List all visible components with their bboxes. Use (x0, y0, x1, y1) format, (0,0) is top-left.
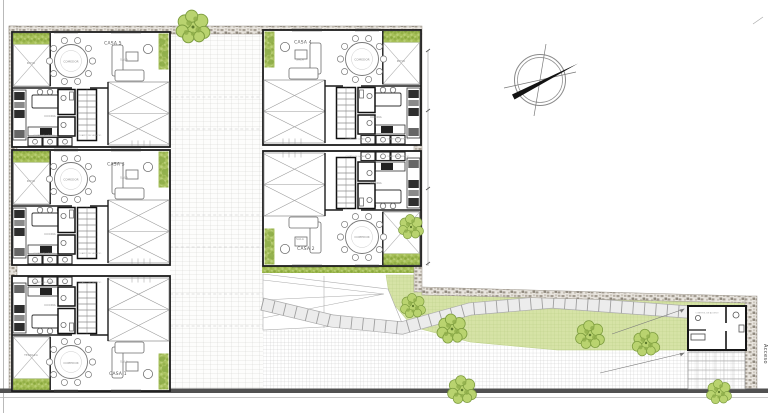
access-label: Acceso (762, 344, 768, 364)
room-label-laundry: CUARTO DE LAVADO (33, 134, 55, 137)
room-label-patio: PATIO (397, 59, 406, 63)
room-label-living: SALA (120, 58, 128, 62)
casa-2-unit (263, 151, 421, 267)
room-label-laundry: CUARTO DE LAVADO (33, 252, 55, 255)
casa-1-label: CASA 1 (109, 371, 127, 377)
room-label-living: SALA (296, 237, 304, 241)
room-label-patio: PATIO (27, 179, 36, 183)
room-label-dining: COMEDOR (63, 60, 78, 64)
room-label-dining: COMEDOR (354, 235, 369, 239)
room-label-service: CUARTO DE SERVICIO (79, 134, 102, 137)
casa-2-label: CASA 2 (297, 246, 315, 252)
room-label-laundry: CUARTO DE LAVADO (345, 155, 367, 158)
central-driveway (170, 30, 263, 391)
room-label-kitchen: COCINA (370, 181, 382, 185)
room-label-service: CUARTO DE SERVICIO (387, 138, 410, 141)
room-label-control: CONTROL DE ACCESO (696, 312, 719, 315)
casa-1-unit (12, 276, 170, 392)
room-label-service: CUARTO DE SERVICIO (79, 281, 102, 284)
room-label-terrace: TERRAZA (23, 353, 38, 357)
room-label-service: CUARTO DE SERVICIO (79, 252, 102, 255)
room-label-kitchen: COCINA (370, 115, 382, 119)
room-label-kitchen: COCINA (44, 232, 56, 236)
casa-3-label: CASA 3 (107, 162, 125, 168)
room-label-dining: COMEDOR (63, 178, 78, 182)
room-label-kitchen: COCINA (44, 114, 56, 118)
casa-5-label: CASA 5 (104, 41, 122, 47)
room-label-patio: PATIO (27, 61, 36, 65)
room-label-dining: COMEDOR (354, 58, 369, 62)
room-label-living: SALA (296, 58, 304, 62)
room-label-service: CUARTO DE SERVICIO (387, 155, 410, 158)
casa-3-unit (12, 149, 170, 265)
casa-4-unit (263, 29, 421, 145)
casa-5-unit (12, 31, 170, 147)
floor-plan-page: CASA 5 CASA 4 CASA 3 CASA 2 CASA 1 PATIO… (0, 0, 768, 413)
room-label-living: SALA (120, 360, 128, 364)
room-label-dining: COMEDOR (63, 361, 78, 365)
site-plan-drawing: CASA 5 CASA 4 CASA 3 CASA 2 CASA 1 PATIO… (0, 0, 768, 413)
room-label-laundry: CUARTO DE LAVADO (33, 281, 55, 284)
room-label-living: SALA (120, 176, 128, 180)
room-label-kitchen: COCINA (44, 303, 56, 307)
room-label-laundry: CUARTO DE LAVADO (345, 138, 367, 141)
casa-4-label: CASA 4 (294, 40, 312, 46)
